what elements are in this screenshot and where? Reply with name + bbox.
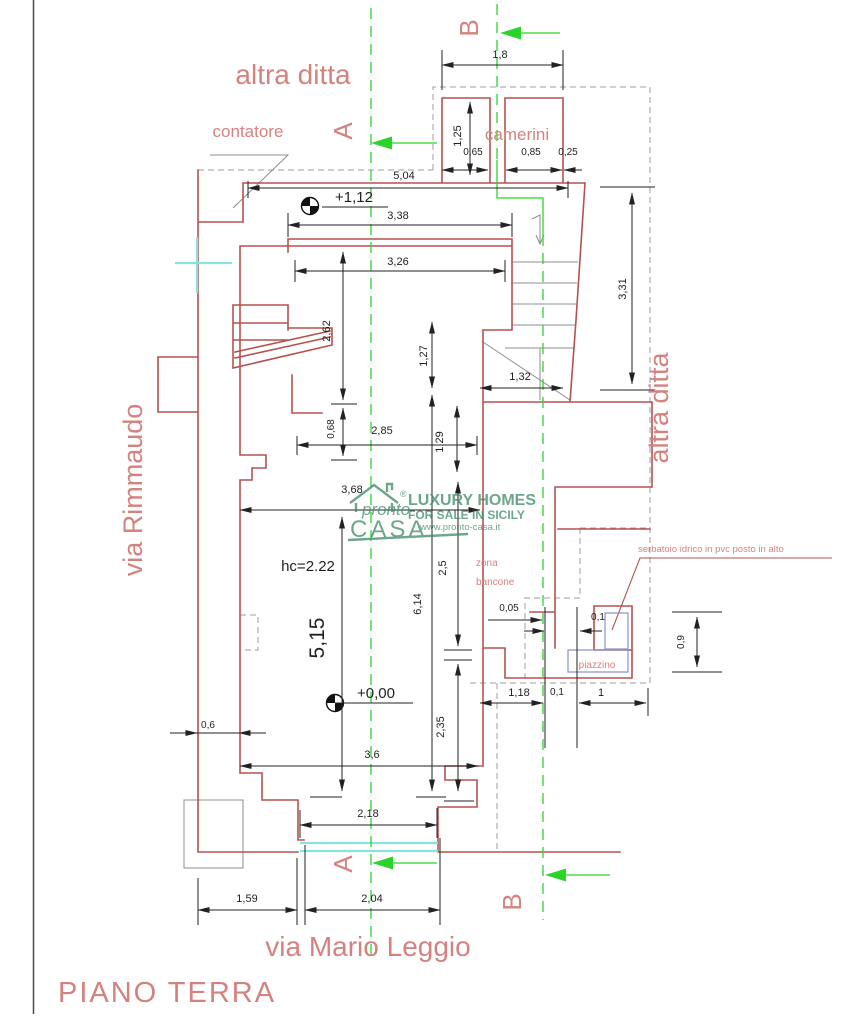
street-label-left: via Rimmaudo [118,404,148,577]
watermark: pronto CASA ® LUXURY HOMES FOR SALE IN S… [348,484,536,543]
dim-annex-gap: 0,05 [499,603,519,614]
section-a-top-label: A [328,122,358,140]
neighbor-label-top: altra ditta [235,59,351,90]
dim-annex-w2: 0,1 [550,687,564,698]
watermark-website: www.pronto-casa.it [419,522,501,533]
dim-stair-w: 1,32 [509,371,530,383]
dim-lower-w: 3,6 [364,749,379,761]
watermark-tagline-2: FOR SALE IN SICILY [408,508,525,522]
dim-left-wall-t: 0,6 [201,720,215,731]
dim-lower-h: 2,35 [435,716,447,737]
dim-camerini-depth: 1,25 [452,125,464,146]
section-b-bottom-label: B [497,893,527,910]
dim-stair-total-h: 3,31 [617,278,629,299]
wall-niche-dashed [240,615,258,650]
dim-annex-w1: 1,18 [508,687,529,699]
section-a-bottom-label: A [328,855,358,873]
room-label-bancone: bancone [476,577,515,588]
dim-camerini-right-w: 0,85 [521,147,541,158]
room-label-camerini: camerini [485,125,549,144]
dim-mid-step-h: 0,68 [326,419,337,439]
benchmark-symbol-upper [302,198,319,215]
note-ceiling-height: hc=2.22 [281,558,335,575]
dim-zona-h: 2,5 [437,560,449,575]
dim-front-right-w: 2,04 [361,893,382,905]
note-serbatoio: serbatoio idrico in pvc posto in alto [638,544,784,555]
level-ground: +0,00 [357,685,395,702]
dim-front-left-w: 1,59 [236,893,257,905]
room-label-piazzino: piazzino [579,660,616,671]
dim-inner-w: 3,26 [387,256,408,268]
plan-title: PIANO TERRA [58,977,276,1009]
section-b-top-label: B [454,19,484,36]
boundary-dashed-lines [198,87,650,852]
neighbor-label-right: altra ditta [644,351,674,463]
dim-left-upper-h: 2,62 [321,320,333,341]
serbatoio-leader-line [612,558,832,630]
dim-annex-off: 0,1 [591,612,605,623]
dim-mid-w: 2,85 [371,425,392,437]
dim-front-top-w: 5,04 [393,170,414,182]
floorplan-canvas: pronto CASA ® LUXURY HOMES FOR SALE IN S… [0,0,846,1024]
watermark-tagline-1: LUXURY HOMES [408,492,536,509]
dim-camerini-wall: 0,25 [558,147,578,158]
dim-camerini-left-w: 0,65 [463,147,483,158]
window-glazing-lines [175,237,438,851]
dim-camerini-total-w: 1,8 [492,49,507,61]
level-upper: +1,12 [335,189,373,206]
dim-room-w: 3,68 [341,484,362,496]
floorplan-drawing: pronto CASA ® LUXURY HOMES FOR SALE IN S… [0,0,846,1024]
dim-entry-w: 2,18 [357,808,378,820]
dim-room-h: 5,15 [306,618,329,659]
dim-stair-inner-h: 1,27 [418,345,430,366]
dim-annex-w3: 1 [598,687,604,699]
room-label-contatore: contatore [213,122,284,141]
dim-right-upper-h: 1,29 [434,431,446,452]
watermark-registered-icon: ® [400,489,407,499]
section-line-solid [391,33,610,875]
dim-inner-top-w: 3,38 [387,210,408,222]
street-label-bottom: via Mario Leggio [265,931,470,962]
dim-right-total-h: 6,14 [412,593,424,614]
dim-annex-h: 0,9 [676,635,687,649]
room-label-zona: zona [476,558,498,569]
